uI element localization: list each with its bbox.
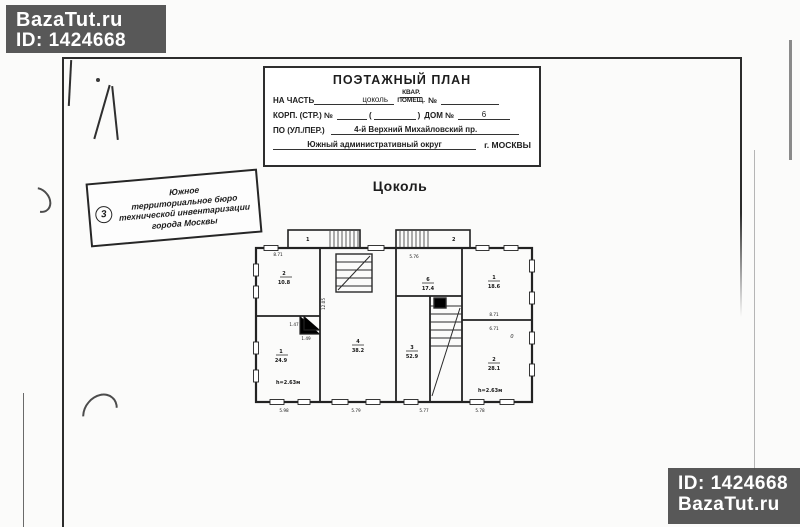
dim-bottom: 5.77 [419, 408, 429, 413]
room-area: 18.6 [488, 284, 501, 290]
header-row-4: Южный административный округ г. МОСКВЫ [273, 140, 531, 150]
room-number: 6 [426, 277, 430, 283]
city-value: г. МОСКВЫ [484, 140, 531, 150]
stair-hatch-right [400, 231, 428, 247]
document-border-right [740, 57, 742, 317]
scanned-floorplan-page: { "watermark_top": { "site": "BazaTut.ru… [0, 0, 800, 527]
porch-left-label: 1 [306, 237, 310, 243]
page-edge-line [23, 393, 24, 527]
dim-label: 6.71 [489, 326, 499, 331]
room-number: 2 [282, 271, 286, 277]
dim-label: 1.49 [301, 336, 311, 341]
dim-bottom: 5.79 [351, 408, 361, 413]
blank-field [501, 126, 519, 135]
room-number: 1 [492, 275, 496, 281]
room-number: 4 [356, 339, 360, 345]
punch-hole-mark [22, 182, 57, 218]
header-row-3: ПО (УЛ./ПЕР.) 4-й Верхний Михайловский п… [273, 125, 531, 135]
dim-label: 8.71 [273, 252, 283, 257]
room-area: 52.9 [406, 354, 419, 360]
okrug-value: Южный административный округ [273, 140, 476, 150]
kvar-pomesch-label: КВАР. ПОМЕЩ. [397, 90, 425, 105]
room-area: 38.2 [352, 348, 365, 354]
korp-label: КОРП. (СТР.) № [273, 111, 333, 120]
floor-title: Цоколь [340, 178, 460, 194]
zero-mark: 0 [510, 334, 513, 340]
height-label: h=2.63м [276, 380, 300, 386]
paren-close: ) [418, 111, 421, 120]
dim-label: 12.05 [321, 298, 326, 310]
watermark-bottom-right: ID: 1424668 BazaTut.ru [668, 468, 800, 524]
room-area: 28.1 [488, 366, 501, 372]
room-area: 10.8 [278, 280, 291, 286]
na-chast-label: НА ЧАСТЬ [273, 96, 314, 105]
header-row-1: НА ЧАСТЬ цоколь КВАР. ПОМЕЩ. № [273, 90, 531, 105]
internal-stair [336, 254, 372, 292]
room-number: 1 [279, 349, 283, 355]
porch-left [288, 230, 360, 248]
dom-label: ДОМ № [424, 111, 454, 120]
scan-edge-line [754, 150, 755, 470]
dim-bottom: 5.98 [279, 408, 289, 413]
num-label: № [428, 96, 437, 105]
room-number: 2 [492, 357, 496, 363]
stamp-text: Южное территориальное бюро технической и… [116, 180, 253, 235]
room-number: 3 [410, 345, 414, 351]
wall-notch [300, 316, 320, 334]
dim-label: 5.76 [409, 254, 419, 259]
floorplan-header-box: ПОЭТАЖНЫЙ ПЛАН НА ЧАСТЬ цоколь КВАР. ПОМ… [263, 66, 541, 167]
header-title: ПОЭТАЖНЫЙ ПЛАН [273, 73, 531, 87]
watermark-site: BazaTut.ru [678, 495, 790, 516]
blank-field [337, 111, 367, 120]
street-label: ПО (УЛ./ПЕР.) [273, 126, 325, 135]
watermark-top-left: BazaTut.ru ID: 1424668 [6, 5, 166, 53]
pen-mark-dot [96, 78, 100, 82]
na-chast-value: цоколь [356, 95, 394, 105]
dom-value: 6 [458, 110, 510, 120]
blank-field [314, 96, 356, 105]
dim-bottom: 5.78 [475, 408, 485, 413]
room-area: 17.4 [422, 286, 435, 292]
stamp-number: 3 [95, 205, 113, 223]
stair-core [430, 298, 462, 396]
header-row-2: КОРП. (СТР.) № ( ) ДОМ № 6 [273, 110, 531, 120]
room-area: 24.9 [275, 358, 288, 364]
blank-field [374, 111, 416, 120]
scan-edge-mark [789, 40, 792, 160]
floorplan-drawing: 1 2 2 10.8 1 24.9 4 38.2 6 17.4 3 52.9 1… [248, 224, 543, 420]
watermark-id: ID: 1424668 [16, 31, 156, 52]
street-value: 4-й Верхний Михайловский пр. [331, 125, 501, 135]
dim-label: 8.71 [489, 312, 499, 317]
dim-label: 1.47 [289, 322, 299, 327]
porch-right [396, 230, 470, 248]
porch-right-label: 2 [452, 237, 456, 243]
watermark-site: BazaTut.ru [16, 9, 156, 31]
paren-open: ( [369, 111, 372, 120]
height-label: h=2.63м [478, 388, 502, 394]
blank-field [441, 96, 499, 105]
floorplan-svg: 1 2 2 10.8 1 24.9 4 38.2 6 17.4 3 52.9 1… [248, 224, 543, 420]
stair-hatch-left [330, 231, 358, 247]
watermark-id: ID: 1424668 [678, 474, 790, 495]
